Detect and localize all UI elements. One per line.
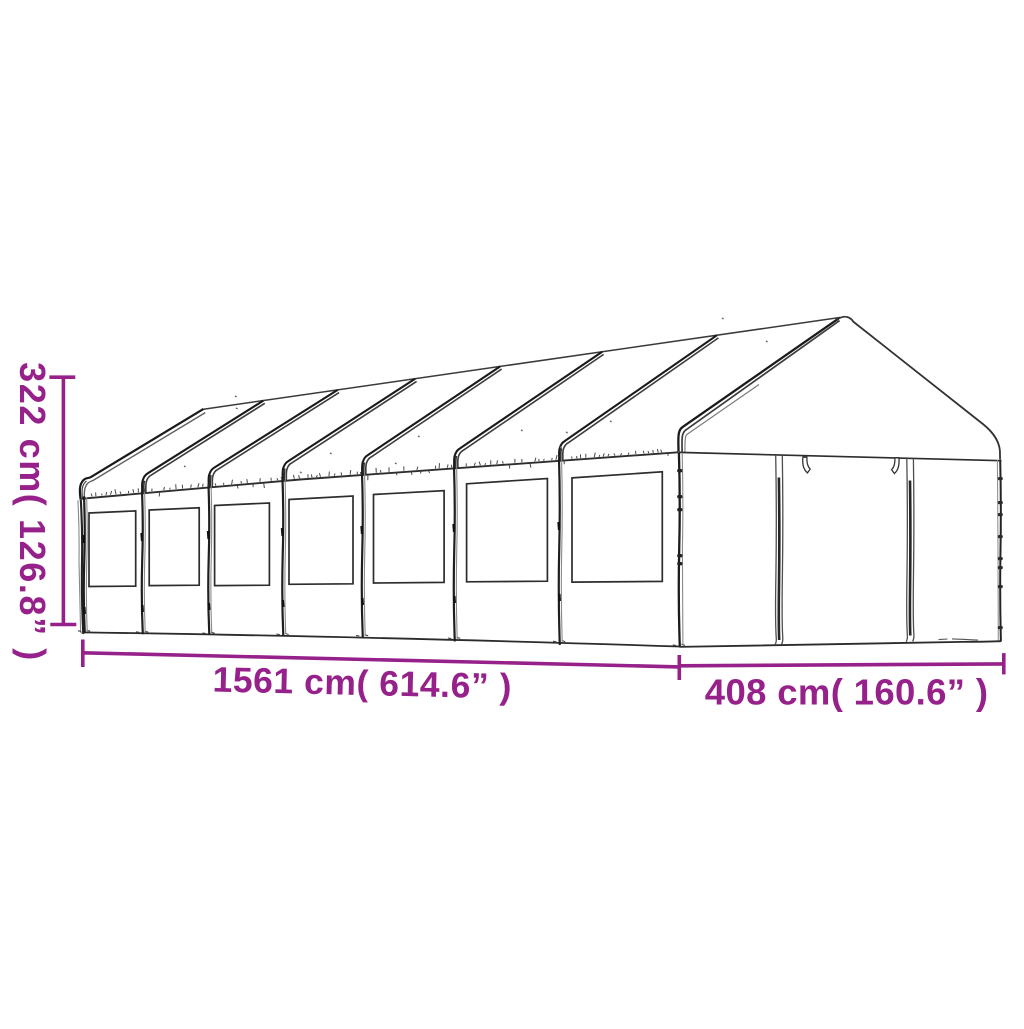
svg-text:408 cm( 160.6” ): 408 cm( 160.6” )	[705, 672, 989, 713]
svg-text:322 cm( 126.8” ): 322 cm( 126.8” )	[12, 362, 53, 662]
svg-text:1561 cm( 614.6” ): 1561 cm( 614.6” )	[212, 659, 512, 706]
